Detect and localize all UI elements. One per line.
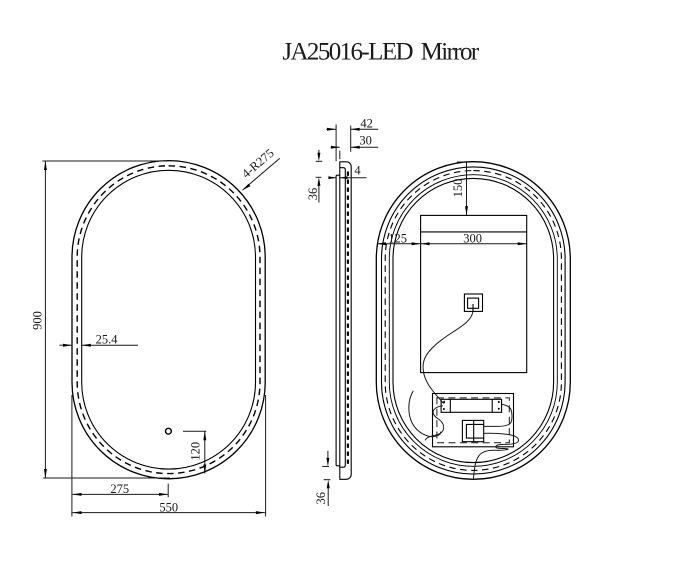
svg-text:150: 150 [451,179,465,198]
svg-text:120: 120 [189,442,203,461]
svg-text:JA25016-LED Mirror: JA25016-LED Mirror [282,39,480,66]
svg-text:42: 42 [360,117,373,131]
svg-text:550: 550 [159,500,178,514]
svg-text:900: 900 [30,311,44,330]
svg-text:25.4: 25.4 [96,332,119,346]
svg-text:125: 125 [388,232,407,246]
svg-text:275: 275 [110,482,129,496]
svg-text:36: 36 [314,492,328,505]
svg-text:300: 300 [463,232,482,246]
svg-text:4: 4 [354,164,361,178]
svg-text:36: 36 [306,188,320,201]
svg-text:30: 30 [359,134,372,148]
